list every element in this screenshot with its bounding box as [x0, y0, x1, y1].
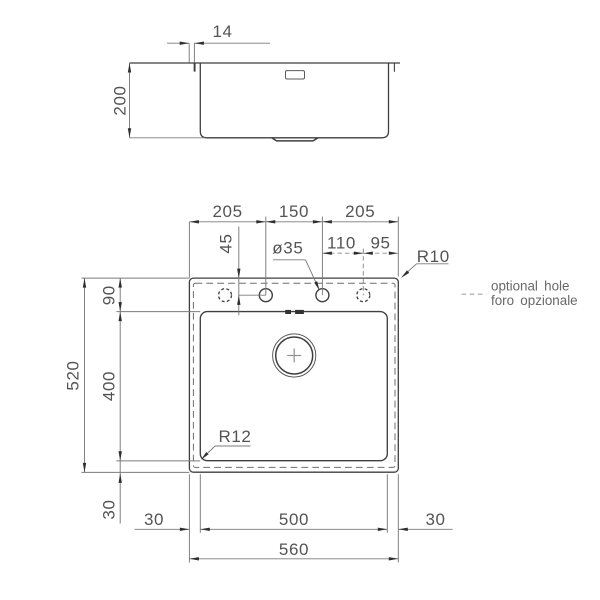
svg-text:14: 14: [212, 22, 232, 41]
svg-text:optional hole: optional hole: [491, 279, 569, 294]
svg-text:400: 400: [100, 371, 119, 401]
svg-text:200: 200: [111, 85, 130, 115]
svg-text:500: 500: [279, 510, 309, 529]
svg-text:45: 45: [217, 233, 236, 253]
svg-text:560: 560: [279, 540, 309, 559]
svg-text:90: 90: [100, 285, 119, 305]
svg-text:150: 150: [279, 202, 309, 221]
svg-text:R10: R10: [417, 247, 450, 266]
svg-text:205: 205: [345, 202, 375, 221]
svg-text:205: 205: [213, 202, 243, 221]
svg-text:95: 95: [370, 234, 390, 253]
svg-text:30: 30: [100, 499, 119, 519]
svg-text:110: 110: [327, 234, 356, 253]
svg-text:ø35: ø35: [272, 239, 303, 258]
svg-text:30: 30: [144, 510, 164, 529]
svg-text:520: 520: [64, 360, 83, 390]
svg-text:R12: R12: [219, 427, 252, 446]
svg-text:30: 30: [425, 510, 445, 529]
svg-text:foro opzionale: foro opzionale: [491, 293, 578, 308]
